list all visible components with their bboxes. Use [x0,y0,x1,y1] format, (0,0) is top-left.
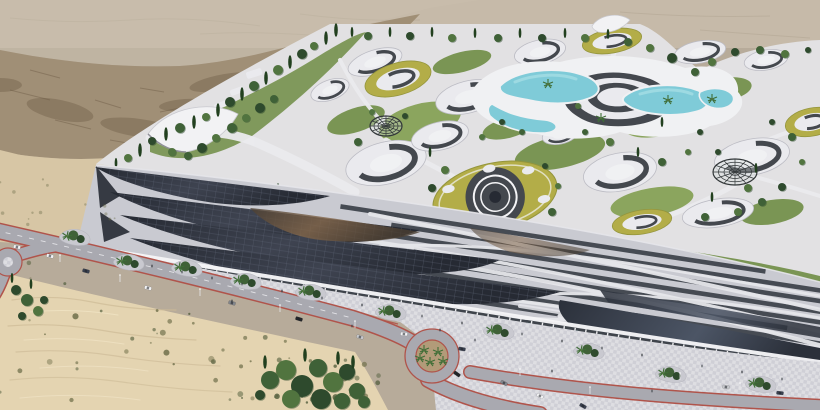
pedestrian [741,371,742,374]
tree-canopy [402,113,408,119]
scrub-bush [376,373,381,378]
tree-canopy [799,159,805,165]
scrub-bush [375,380,380,385]
tree-canopy [197,143,207,153]
scrub-bush [46,184,49,187]
cypress-tree [607,29,610,39]
tree-canopy [168,148,176,156]
tree-canopy [697,129,703,135]
pedestrian [351,325,352,328]
cypress-tree [264,71,268,85]
scrub-bush [17,368,22,373]
scrub-bush [344,358,347,361]
palm-crown [419,357,421,359]
tree-canopy [249,81,259,91]
tree-canopy [479,134,485,140]
cypress-tree [30,279,33,289]
scrub-bush [31,212,33,214]
scrub-bush [72,313,78,319]
scrub-bush [63,282,66,285]
light-head [199,288,201,290]
architectural-render [0,0,820,410]
tree-canopy [548,208,556,216]
tree-canopy [261,371,279,389]
cypress-tree [637,147,640,157]
scrub-bush [47,359,53,365]
tree-canopy [538,34,546,42]
tree-canopy [744,184,752,192]
tree-canopy [227,123,237,133]
car-glass [725,386,728,389]
tree-canopy [542,163,548,169]
geodesic-dome [370,116,402,136]
scrub-bush [250,360,252,362]
palm-crown [547,83,549,85]
tree-canopy [769,119,775,125]
scrub-bush [1,211,5,215]
tree-canopy [575,103,581,109]
scrub-bush [76,367,79,370]
cypress-tree [192,115,196,129]
cypress-tree [303,348,307,362]
tree-canopy [270,95,278,103]
scrub-bush [103,204,106,207]
tree-canopy [708,58,716,66]
scrub-bush [150,342,152,344]
scrub-bush [284,340,287,343]
roundabout-west [0,248,22,276]
tree-canopy [519,129,525,135]
tree-canopy [788,133,796,141]
scrub-bush [192,322,195,325]
scrub-bush [130,337,134,341]
scrub-bush [160,330,166,336]
cypress-tree [389,27,392,37]
tree-canopy [658,158,666,166]
pedestrian [461,322,462,325]
scrub-bush [100,310,103,313]
palm-crown [437,351,439,353]
pedestrian [701,365,702,368]
pedestrian [474,339,475,342]
car [400,332,407,336]
tree-canopy [358,396,370,408]
scrub-bush [26,223,29,226]
tree-canopy [354,138,362,146]
tree-canopy [124,154,132,162]
pedestrian [561,340,562,343]
pedestrian [241,283,242,286]
scrub-bush [84,203,86,205]
tree-canopy [428,184,436,192]
car-glass [779,392,782,395]
pedestrian [601,347,602,350]
tree-canopy [606,138,614,146]
roundabout-island [3,257,13,267]
tree-canopy [175,123,185,133]
cypress-tree [519,28,522,38]
tree-canopy [781,50,789,58]
pedestrian [211,277,212,280]
pedestrian [361,304,362,307]
pedestrian [521,333,522,336]
scrub-bush [221,348,224,351]
roundabout-main [405,329,459,383]
tree-canopy [311,389,331,409]
tree-canopy [555,183,561,189]
tree-canopy [805,47,811,53]
scrub-bush [152,328,155,331]
scrub-bush [250,396,254,400]
palm-crown [600,117,602,119]
scrub-bush [124,349,129,354]
scrub-bush [69,398,73,402]
scrub-bush [237,391,243,397]
cypress-tree [240,87,244,101]
scrub-bush [172,363,174,365]
scrub-bush [156,333,158,335]
scrub-bush [44,333,46,335]
tree-canopy [756,46,764,54]
car-glass [16,246,19,249]
scrub-bush [27,261,32,266]
scrub-bush [362,362,367,367]
tree-canopy [242,114,250,122]
scrub-bush [75,361,78,364]
tree-canopy [18,312,26,320]
scrub-bush [167,319,172,324]
scrub-bush [104,212,107,215]
car-glass [461,348,464,351]
tree-canopy [685,149,691,155]
palm-crown [442,360,444,362]
tree-canopy [667,53,677,63]
tree-canopy [225,97,235,107]
scrub-bush [263,335,268,340]
tree-canopy [691,68,699,76]
tree-canopy [334,393,350,409]
scrub-bush [274,394,280,400]
pedestrian [421,315,422,318]
car-glass [403,333,406,336]
scrub-bush [243,336,247,340]
pedestrian [439,329,440,332]
tree-canopy [21,294,33,306]
palm-crown [711,98,713,100]
cypress-tree [288,55,292,69]
tree-canopy [310,42,318,50]
tree-canopy [734,208,742,216]
scrub-bush [156,309,159,312]
cypress-tree [351,355,355,369]
tree-canopy [448,34,456,42]
tree-canopy [202,113,210,121]
palm-crown [423,349,425,351]
light-head [589,386,591,388]
pedestrian [151,265,152,268]
tree-canopy [582,129,588,135]
pedestrian [181,271,182,274]
render-canvas [0,0,820,410]
cypress-tree [263,355,267,369]
cypress-tree [474,28,477,38]
cypress-tree [661,117,664,127]
scrub-bush [42,178,44,180]
light-head [59,254,61,256]
cypress-tree [711,192,714,202]
light-head [519,368,521,370]
geodesic-dome [713,159,757,185]
cypress-tree [11,273,14,283]
scrub-bush [163,350,169,356]
light-head [119,274,121,276]
tree-canopy [309,359,327,377]
tree-canopy [276,360,296,380]
tree-canopy [255,390,265,400]
scrub-bush [355,376,360,381]
pedestrian [231,300,232,303]
cypress-tree [336,351,340,365]
scrub-bush [213,378,218,383]
tree-canopy [364,32,372,40]
scrub-bush [241,397,243,399]
scrub-bush [288,357,290,359]
light-head [469,352,471,354]
tree-canopy [33,306,43,316]
tree-canopy [441,166,449,174]
tree-canopy [758,198,766,206]
tree-canopy [369,109,375,115]
scrub-bush [208,356,214,362]
tree-canopy [297,49,307,59]
tree-canopy [40,296,48,304]
pedestrian [651,390,652,393]
tree-canopy [11,285,21,295]
tree-canopy [731,48,739,56]
tree-canopy [148,137,156,145]
pedestrian [551,370,552,373]
tree-canopy [494,34,502,42]
tree-canopy [255,103,265,113]
light-head [354,320,356,322]
scrub-bush [306,401,308,403]
scrub-bush [28,218,30,220]
cypress-tree [334,23,338,37]
light-head [679,372,681,374]
scrub-bush [28,319,30,321]
cypress-tree [564,28,567,38]
palm-crown [429,361,431,363]
light-head [279,304,281,306]
pedestrian [781,378,782,381]
cypress-tree [324,31,328,45]
scrub-bush [229,398,232,401]
pedestrian [321,297,322,300]
tree-canopy [406,32,414,40]
scrub-bush [239,364,243,368]
tree-canopy [499,119,505,125]
tree-canopy [701,213,709,221]
tree-canopy [581,34,589,42]
cypress-tree [138,143,142,157]
scrub-bush [12,190,16,194]
scrub-bush [114,217,116,219]
scrub-bush [188,313,190,315]
cypress-tree [429,147,432,157]
pedestrian [641,354,642,357]
cypress-tree [431,27,434,37]
pedestrian [281,290,282,293]
scrub-bush [39,211,43,215]
cypress-tree [216,103,220,117]
cypress-tree [164,127,168,141]
scrub-bush [108,218,111,221]
tree-canopy [624,38,632,46]
cypress-tree [351,27,354,37]
tree-canopy [184,152,192,160]
pool-complex [470,56,742,139]
tree-canopy [273,65,283,75]
tree-canopy [282,390,300,408]
scrub-bush [333,364,336,367]
tree-canopy [778,183,786,191]
tree-canopy [646,44,654,52]
tree-canopy [212,134,220,142]
palm-crown [667,99,669,101]
light-head [739,382,741,384]
cypress-tree [755,163,758,173]
tree-canopy [715,149,721,155]
